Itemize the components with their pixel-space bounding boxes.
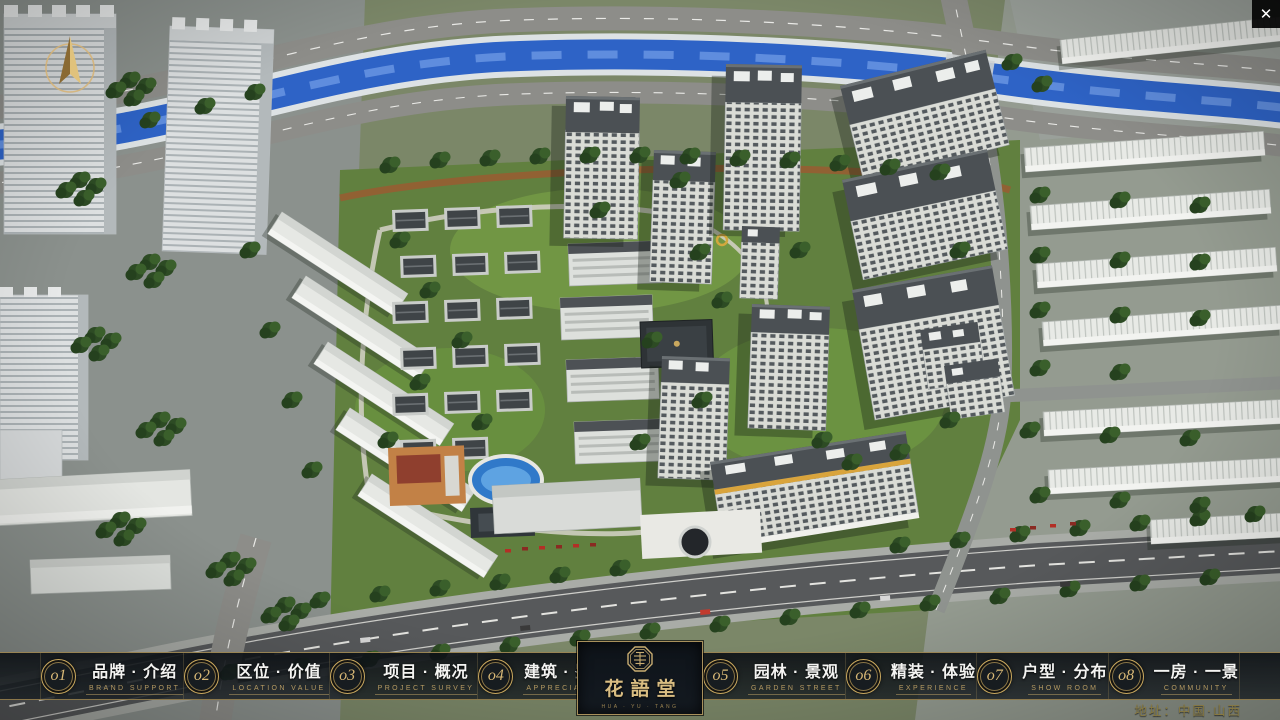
nav-item-fine-decoration[interactable]: o6 精装 · 体验 EXPERIENCE [845,653,976,699]
nav-number-badge: o5 [703,659,738,694]
nav-item-subtitle: PROJECT SURVEY [375,685,478,695]
nav-number-badge: o8 [1109,659,1144,694]
nav-item-title: 品牌 · 介绍 [92,658,177,682]
bottom-navigation: o1 品牌 · 介绍 BRAND SUPPORT o2 区位 · 价值 LOCA… [0,641,1280,720]
nav-strip-left: o1 品牌 · 介绍 BRAND SUPPORT o2 区位 · 价值 LOCA… [0,652,577,700]
nav-item-garden-landscape[interactable]: o5 园林 · 景观 GARDEN STREET [703,653,845,699]
nav-item-subtitle: COMMUNITY [1161,685,1232,695]
nav-item-title: 区位 · 价值 [236,658,321,682]
masterplan-aerial-render [0,0,1280,720]
nav-strip-right: o5 园林 · 景观 GARDEN STREET o6 精装 · 体验 EXPE… [703,652,1280,700]
compass-icon [38,30,102,102]
nav-number-badge: o4 [478,659,513,694]
nav-number-badge: o2 [184,659,219,694]
sales-presentation-app: ✕ o1 品牌 · 介绍 BRAND SUPPORT o2 区位 · 价值 LO… [0,0,1280,720]
nav-item-subtitle: LOCATION VALUE [229,685,328,695]
nav-item-subtitle: BRAND SUPPORT [86,685,183,695]
nav-item-project-survey[interactable]: o3 项目 · 概况 PROJECT SURVEY [329,653,478,699]
close-button[interactable]: ✕ [1252,0,1280,28]
nav-item-title: 园林 · 景观 [754,658,839,682]
nav-item-location-value[interactable]: o2 区位 · 价值 LOCATION VALUE [183,653,328,699]
project-name: 花語堂 [597,674,682,701]
project-address: 地址：中国·山西 [1134,700,1242,719]
nav-number-badge: o6 [846,659,881,694]
nav-item-title: 户型 · 分布 [1022,658,1107,682]
logo-seal-icon [627,646,653,672]
nav-item-room-view[interactable]: o8 一房 · 一景 COMMUNITY [1108,653,1239,699]
close-icon: ✕ [1260,5,1273,23]
nav-item-title: 精装 · 体验 [891,658,976,682]
nav-item-brand-intro[interactable]: o1 品牌 · 介绍 BRAND SUPPORT [40,653,183,699]
project-logo-panel[interactable]: 花語堂 HUA · YU · TANG [577,641,703,715]
nav-item-floorplan-distribution[interactable]: o7 户型 · 分布 SHOW ROOM [976,653,1107,699]
nav-item-title: 一房 · 一景 [1154,658,1239,682]
nav-item-subtitle: GARDEN STREET [748,685,845,695]
nav-item-title: 项目 · 概况 [383,658,468,682]
nav-item-subtitle: SHOW ROOM [1028,685,1101,695]
nav-number-badge: o3 [330,659,365,694]
vignette [0,0,1280,720]
nav-spacer-left [0,653,40,699]
nav-number-badge: o1 [41,659,76,694]
nav-number-badge: o7 [977,659,1012,694]
nav-spacer-right [1239,653,1280,699]
project-tagline: HUA · YU · TANG [602,704,679,710]
nav-item-subtitle: EXPERIENCE [896,685,971,695]
